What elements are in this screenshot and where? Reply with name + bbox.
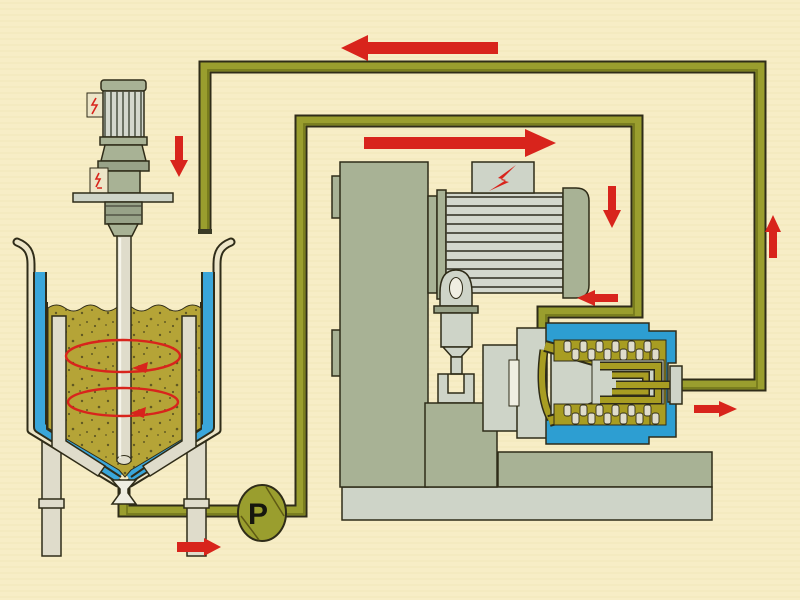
mill-base-upper [498,452,712,487]
outlet-flange [670,366,682,404]
grinding-chamber [509,323,682,444]
motor-fins [103,91,144,137]
sight-glass [450,278,463,299]
drive-stem [451,357,462,374]
seal-housing-ribs [105,202,142,224]
agitator-shaft [117,235,131,465]
pipe-outlet-tip [198,229,212,234]
bearing-plate [434,306,478,313]
gearbox-body [107,171,140,193]
process-diagram: P [0,0,800,600]
motor-flange [100,137,147,145]
motor-top-cap [101,80,146,91]
diagram-canvas: P [0,0,800,600]
leg-flange-left [39,499,64,508]
motor-end-cap [563,188,589,298]
leg-flange-right [184,499,209,508]
tank-leg-right [187,438,206,556]
mill-stand-column [340,162,428,487]
tank-leg-left [42,438,61,556]
motor-bell [101,145,146,161]
mounting-plate [73,193,173,202]
shaft-taper [108,224,138,236]
bearing-cylinder [441,313,472,347]
pump-symbol: P [238,485,286,541]
chamber-support-inner [509,360,519,406]
motor-bell-inner [428,196,437,293]
pump-label: P [248,498,268,531]
mill-base-lower [342,487,712,520]
